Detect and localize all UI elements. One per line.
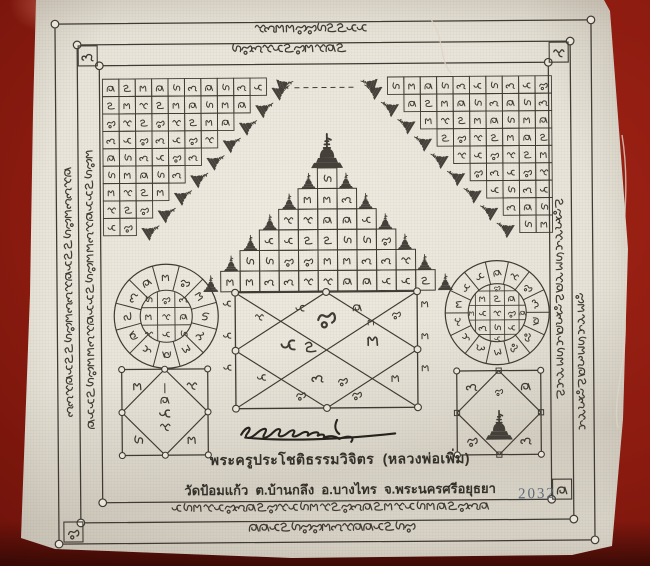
- caption-line-2: วัดป้อมแก้ว ต.บ้านกลึง อ.บางไทร จ.พระนคร…: [105, 477, 575, 502]
- temple-caption: พระครูประโชติธรรมวิจิตร (หลวงพ่อเพิ่ม) ว…: [105, 447, 575, 502]
- caption-line-1: พระครูประโชติธรรมวิจิตร (หลวงพ่อเพิ่ม): [105, 447, 575, 473]
- serial-number-stamp: 2032: [518, 486, 556, 504]
- photo-of-yant-cloth: พระครูประโชติธรรมวิจิตร (หลวงพ่อเพิ่ม) ว…: [0, 0, 650, 566]
